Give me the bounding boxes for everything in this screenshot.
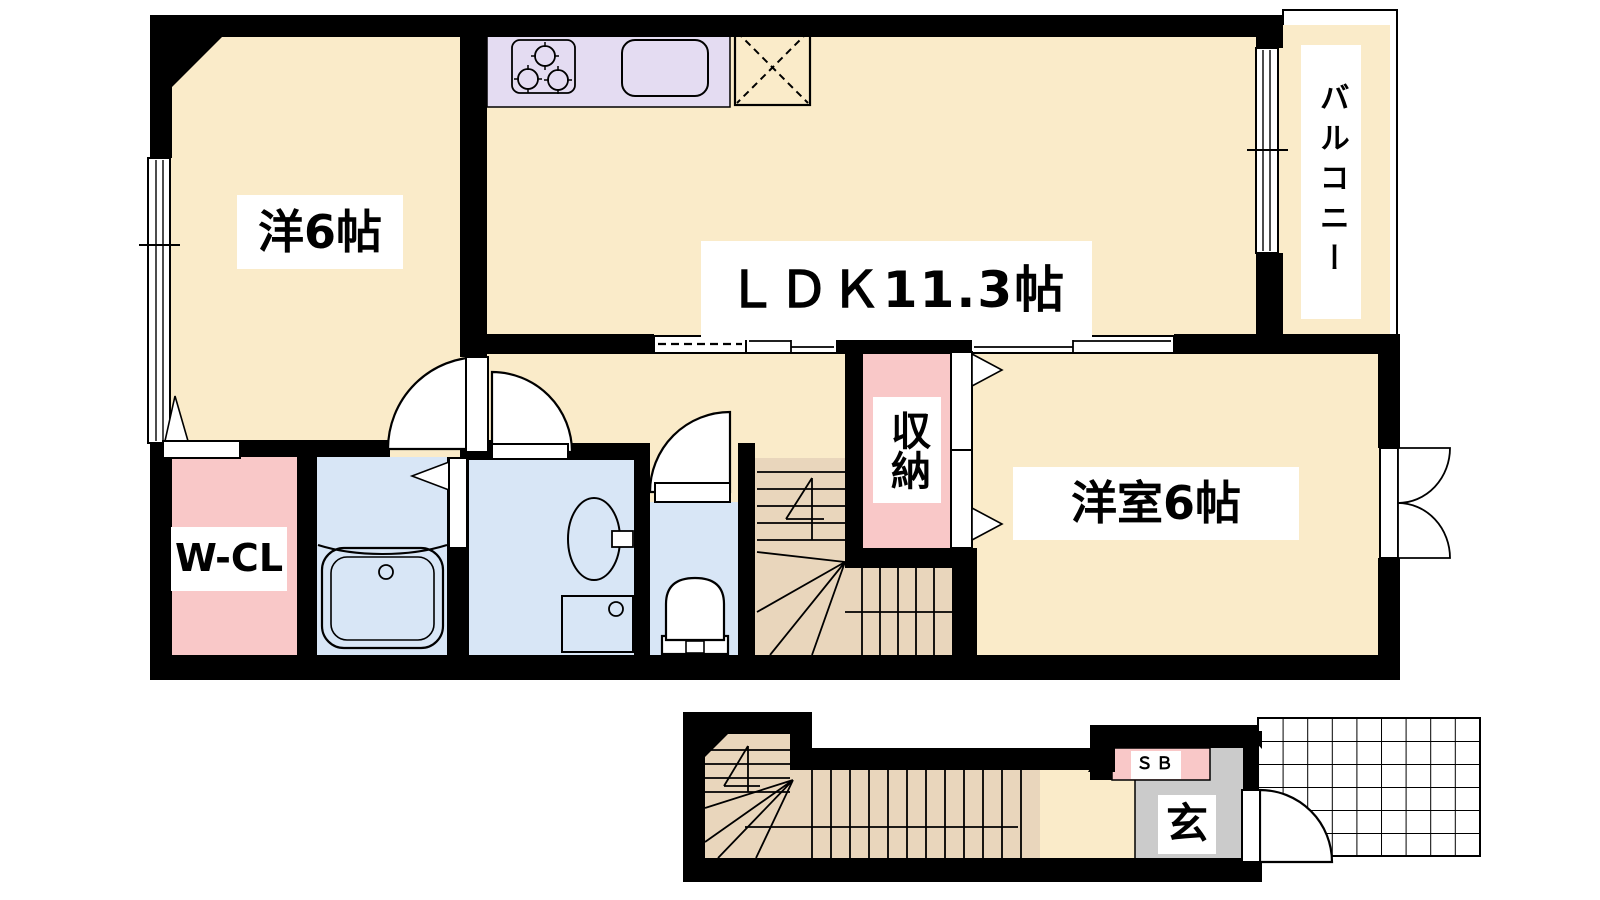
room-label-western6b: 洋室6帖 — [1013, 467, 1299, 540]
lower-floor — [683, 712, 1480, 882]
kitchen-counter — [487, 26, 730, 107]
window-bedroom-right-casement — [1380, 448, 1450, 558]
landing-floor — [1040, 770, 1135, 858]
toilet-icon — [662, 578, 728, 654]
room-label-balcony: バルコニー — [1301, 45, 1361, 319]
floor-plan: 洋6帖 ＬＤＫ11.3帖 洋室6帖 W-CL 収納 バルコニー 玄 ＳＢ — [0, 0, 1600, 900]
washroom-floor — [469, 460, 634, 655]
entrance-floor-upper — [1210, 748, 1243, 780]
room-label-storage: 収納 — [873, 397, 941, 503]
room-label-western6: 洋6帖 — [237, 195, 403, 269]
bathroom-floor — [317, 457, 447, 655]
room-label-ldk: ＬＤＫ11.3帖 — [701, 241, 1092, 340]
room-label-shoebox: ＳＢ — [1131, 751, 1181, 779]
refrigerator-space-icon — [735, 30, 810, 105]
room-label-entrance: 玄 — [1158, 795, 1216, 854]
upper-floor — [139, 10, 1450, 680]
room-label-wcl: W-CL — [171, 527, 287, 591]
